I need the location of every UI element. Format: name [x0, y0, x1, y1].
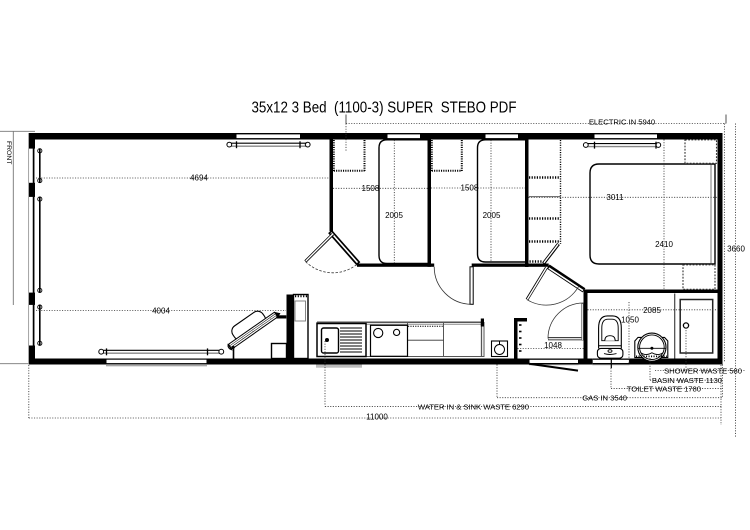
svg-text:1508: 1508 [362, 184, 380, 193]
svg-text:4004: 4004 [152, 307, 170, 316]
svg-text:GAS IN 3540: GAS IN 3540 [582, 394, 627, 403]
svg-text:1048: 1048 [544, 341, 562, 350]
svg-text:2005: 2005 [385, 211, 403, 220]
svg-text:3011: 3011 [606, 193, 624, 202]
svg-text:1508: 1508 [461, 184, 479, 193]
svg-text:TOILET WASTE 1780: TOILET WASTE 1780 [627, 384, 701, 393]
svg-text:ELECTRIC IN 5940: ELECTRIC IN 5940 [589, 118, 655, 127]
svg-text:2085: 2085 [643, 306, 661, 315]
svg-text:1050: 1050 [621, 316, 639, 325]
svg-text:3660: 3660 [727, 245, 745, 254]
svg-text:SHOWER WASTE 580: SHOWER WASTE 580 [664, 366, 742, 375]
svg-text:WATER IN & SINK WASTE 6290: WATER IN & SINK WASTE 6290 [418, 402, 529, 411]
svg-text:4694: 4694 [190, 174, 208, 183]
svg-text:11000: 11000 [366, 412, 388, 421]
svg-text:FRONT: FRONT [5, 141, 12, 164]
svg-text:2005: 2005 [483, 211, 501, 220]
svg-text:35x12 3 Bed (1100-3) SUPER S: 35x12 3 Bed (1100-3) SUPER STEBO PDF [252, 100, 517, 117]
svg-text:2410: 2410 [655, 240, 673, 249]
